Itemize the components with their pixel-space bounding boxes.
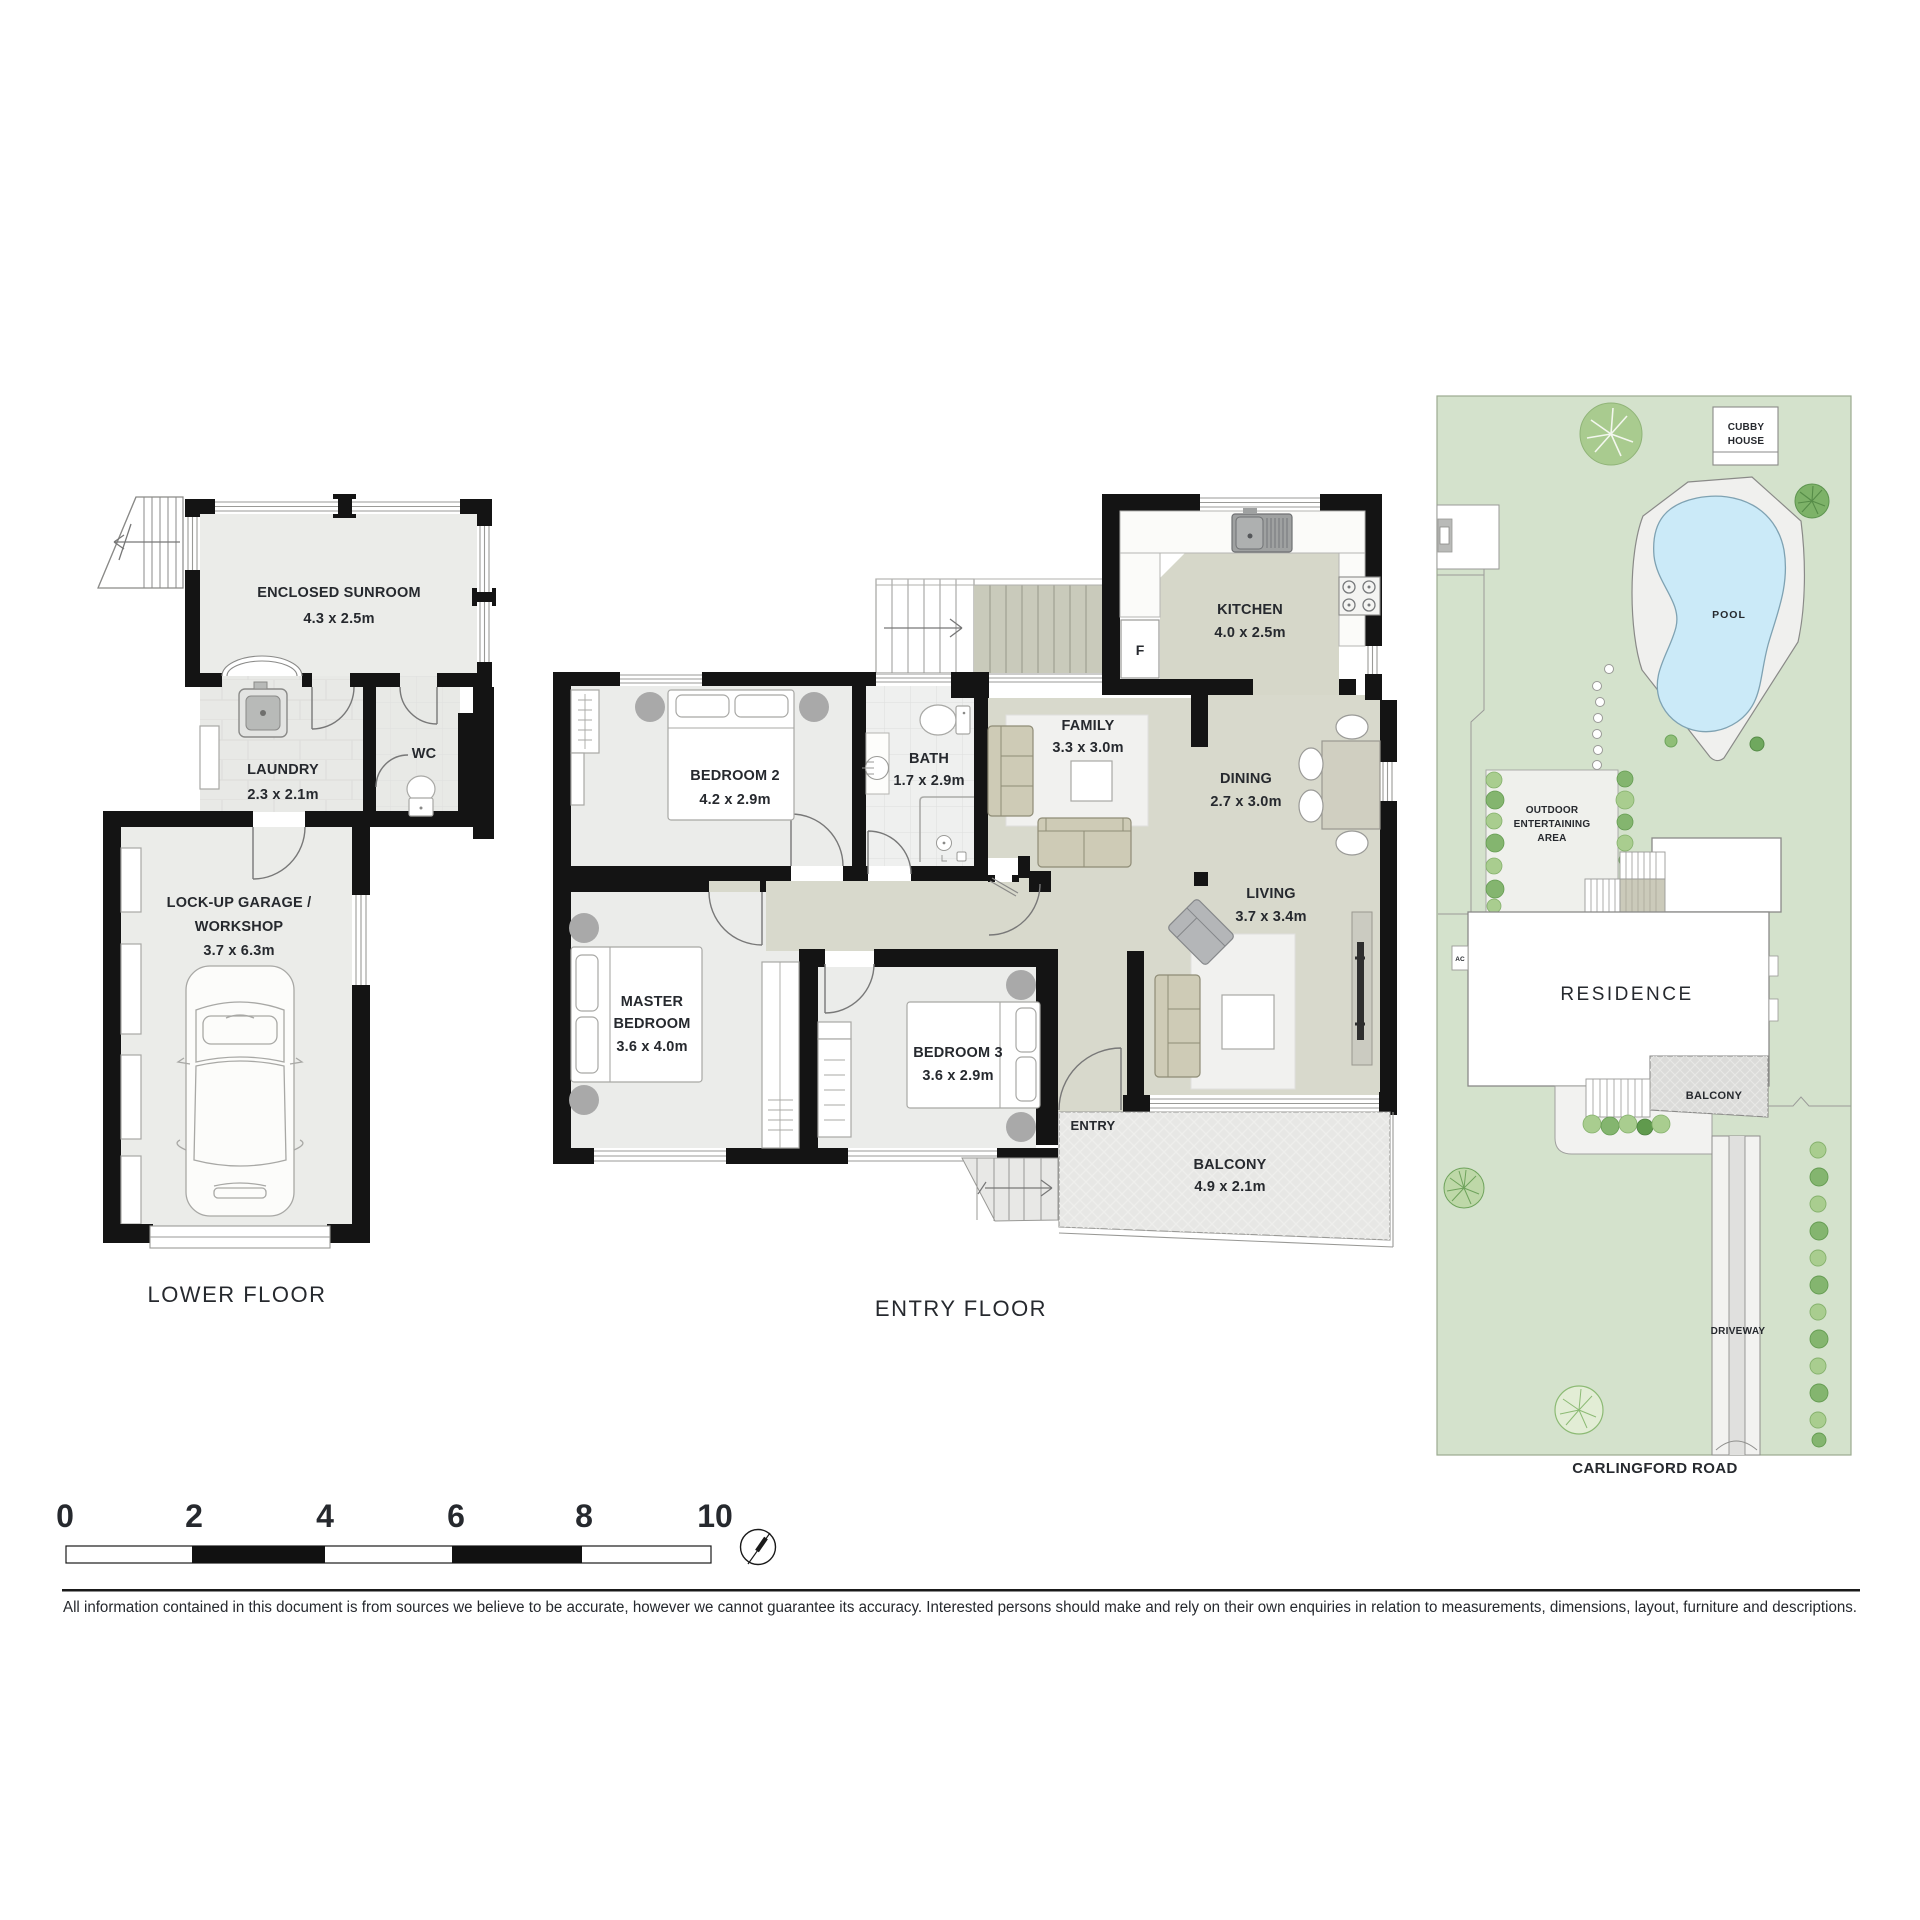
svg-text:BEDROOM 3: BEDROOM 3 [913, 1045, 1003, 1061]
svg-text:ENTRY: ENTRY [1070, 1118, 1115, 1133]
svg-text:BALCONY: BALCONY [1686, 1090, 1743, 1102]
svg-text:4.3 x 2.5m: 4.3 x 2.5m [303, 611, 374, 627]
svg-text:CUBBY: CUBBY [1728, 422, 1765, 433]
svg-text:2.7 x 3.0m: 2.7 x 3.0m [1210, 794, 1281, 810]
svg-text:4.0 x 2.5m: 4.0 x 2.5m [1214, 625, 1285, 641]
svg-text:BEDROOM: BEDROOM [613, 1016, 690, 1032]
svg-text:F: F [1136, 642, 1145, 658]
svg-text:10: 10 [697, 1498, 733, 1534]
svg-text:POOL: POOL [1712, 609, 1746, 621]
svg-text:ENCLOSED SUNROOM: ENCLOSED SUNROOM [257, 585, 421, 601]
svg-text:MASTER: MASTER [621, 994, 684, 1010]
svg-text:3.7 x 6.3m: 3.7 x 6.3m [203, 943, 274, 959]
svg-text:3.7 x 3.4m: 3.7 x 3.4m [1235, 909, 1306, 925]
svg-text:BEDROOM 2: BEDROOM 2 [690, 768, 780, 784]
svg-text:HOUSE: HOUSE [1728, 436, 1765, 447]
svg-text:2: 2 [185, 1498, 203, 1534]
svg-text:ENTERTAINING: ENTERTAINING [1514, 819, 1591, 830]
svg-text:All information contained in t: All information contained in this docume… [63, 1599, 1857, 1616]
svg-text:AREA: AREA [1537, 833, 1566, 844]
svg-text:CARLINGFORD ROAD: CARLINGFORD ROAD [1572, 1460, 1738, 1477]
svg-text:1.7 x 2.9m: 1.7 x 2.9m [893, 773, 964, 789]
svg-text:6: 6 [447, 1498, 465, 1534]
svg-text:OUTDOOR: OUTDOOR [1526, 805, 1579, 816]
svg-text:LOWER FLOOR: LOWER FLOOR [147, 1282, 326, 1307]
svg-text:WC: WC [412, 746, 437, 762]
svg-text:3.6 x 4.0m: 3.6 x 4.0m [616, 1039, 687, 1055]
svg-text:KITCHEN: KITCHEN [1217, 602, 1283, 618]
svg-text:LIVING: LIVING [1246, 886, 1296, 902]
svg-text:BATH: BATH [909, 751, 949, 767]
svg-text:AC: AC [1455, 956, 1465, 963]
svg-text:DRIVEWAY: DRIVEWAY [1711, 1326, 1766, 1337]
svg-text:LOCK-UP GARAGE /: LOCK-UP GARAGE / [167, 895, 312, 911]
svg-text:FAMILY: FAMILY [1061, 718, 1114, 734]
svg-text:DINING: DINING [1220, 771, 1272, 787]
svg-text:WORKSHOP: WORKSHOP [195, 919, 284, 935]
svg-text:ENTRY FLOOR: ENTRY FLOOR [875, 1296, 1047, 1321]
svg-text:4: 4 [316, 1498, 334, 1534]
svg-text:4.9 x 2.1m: 4.9 x 2.1m [1194, 1179, 1265, 1195]
svg-text:3.3 x 3.0m: 3.3 x 3.0m [1052, 740, 1123, 756]
svg-text:0: 0 [56, 1498, 74, 1534]
svg-text:LAUNDRY: LAUNDRY [247, 762, 319, 778]
svg-text:2.3 x 2.1m: 2.3 x 2.1m [247, 787, 318, 803]
svg-text:8: 8 [575, 1498, 593, 1534]
svg-text:BALCONY: BALCONY [1193, 1157, 1266, 1173]
svg-text:3.6 x 2.9m: 3.6 x 2.9m [922, 1068, 993, 1084]
svg-text:4.2 x 2.9m: 4.2 x 2.9m [699, 792, 770, 808]
svg-text:RESIDENCE: RESIDENCE [1560, 984, 1693, 1005]
